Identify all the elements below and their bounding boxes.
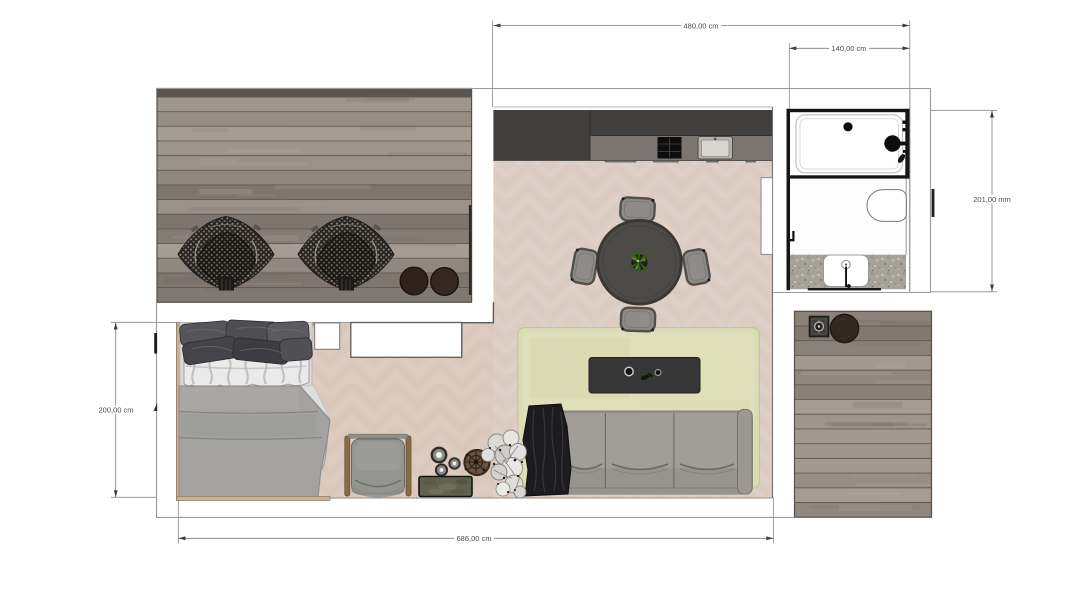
svg-text:480,00 cm: 480,00 cm: [683, 21, 718, 30]
svg-text:140,00 cm: 140,00 cm: [831, 44, 866, 53]
svg-text:686,00 cm: 686,00 cm: [456, 534, 491, 543]
svg-text:201,00 mm: 201,00 mm: [973, 195, 1011, 204]
svg-text:200,00 cm: 200,00 cm: [98, 406, 133, 415]
